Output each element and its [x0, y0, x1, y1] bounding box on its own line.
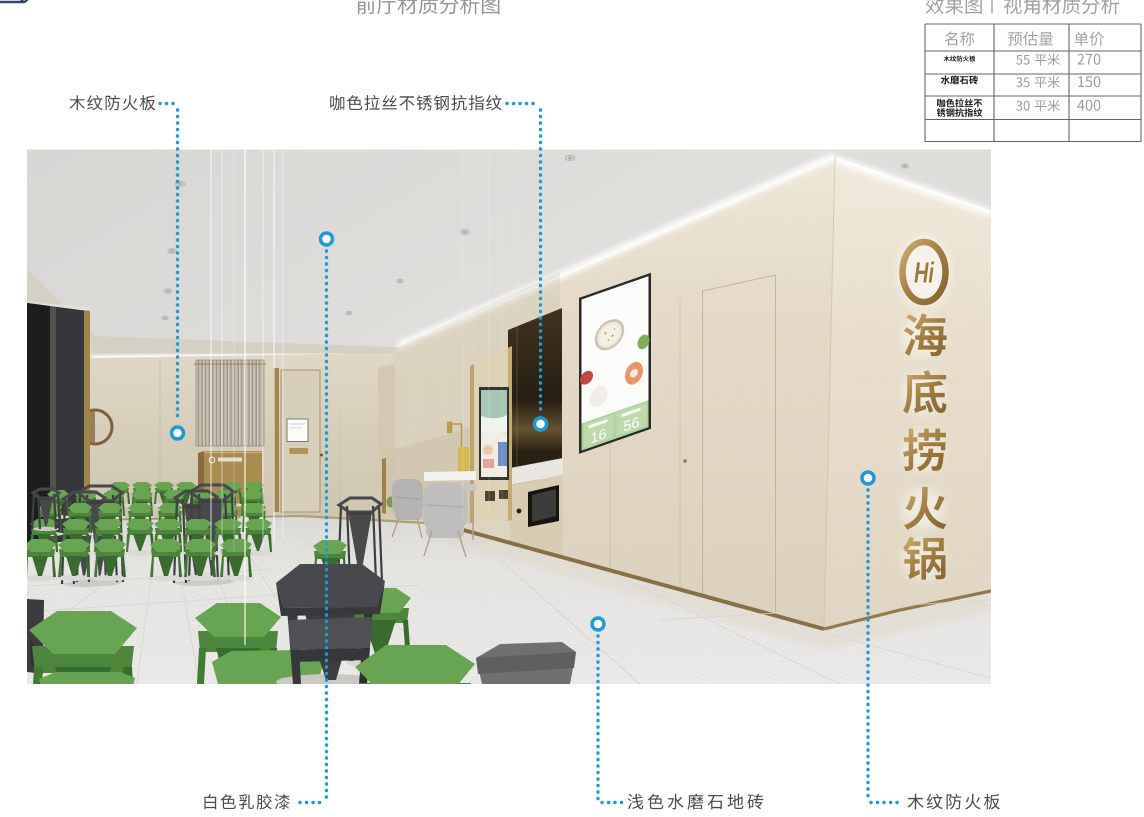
svg-text:Hi: Hi [914, 258, 935, 289]
